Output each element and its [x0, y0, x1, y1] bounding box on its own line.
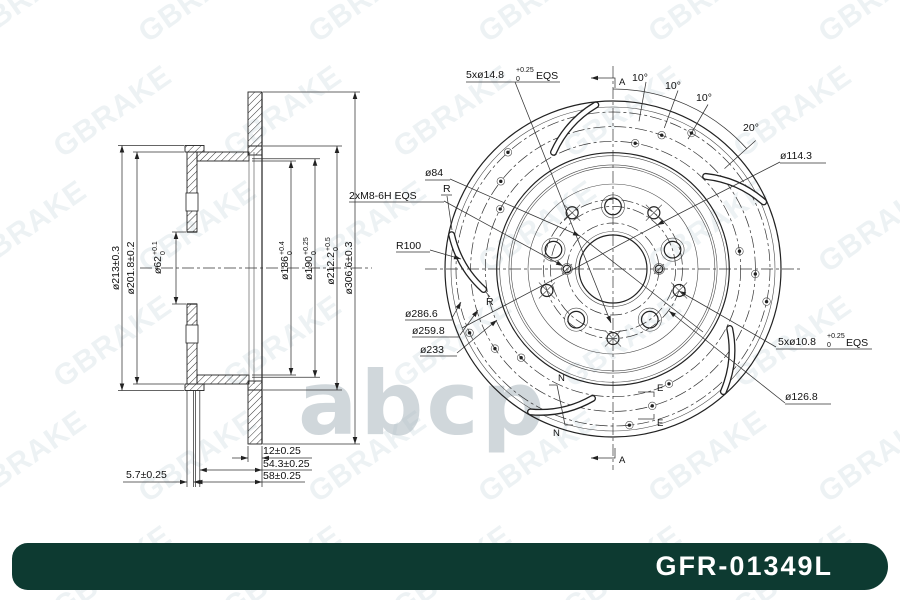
label-slot-circle-3: ø233 — [420, 344, 444, 356]
label-pcd: ø114.3 — [780, 150, 812, 162]
drill-dimple-center — [519, 356, 522, 359]
arrowhead — [556, 261, 564, 268]
part-number-banner: GFR-01349L — [12, 543, 888, 590]
svg-text:+0.5: +0.5 — [325, 237, 332, 251]
svg-text:+0.4: +0.4 — [279, 241, 286, 255]
drill-dimple-center — [651, 404, 654, 407]
arrowhead — [120, 384, 125, 391]
label-r-mark-top: R — [443, 183, 451, 195]
arrowhead — [313, 370, 318, 377]
label-slot-circle-1: ø286.6 — [405, 308, 438, 320]
svg-text:ø186: ø186 — [279, 256, 291, 280]
label-section-a-bottom: A — [619, 455, 626, 466]
part-number: GFR-01349L — [655, 551, 833, 582]
arrowhead — [335, 383, 340, 390]
label-holes-inner-sub: 0 — [827, 342, 831, 349]
arrowhead — [289, 368, 294, 375]
label-bolt-inner-circle: ø126.8 — [785, 391, 818, 403]
dim-label-212: ø212.2 +0.5 0 — [325, 237, 340, 285]
dim-label-186: ø186 +0.4 0 — [279, 241, 294, 280]
arrowhead — [180, 480, 187, 485]
leader-holes-inner — [679, 291, 776, 347]
label-thread: 2xM8-6H EQS — [349, 190, 417, 202]
leader-pcd — [462, 162, 780, 328]
leader-slot-radius — [430, 196, 490, 297]
dim-label-201: ø201.8±0.2 — [125, 241, 137, 294]
arrowhead — [606, 316, 613, 324]
brake-disc-technical-drawing: ø213±0.3 ø201.8±0.2 ø62 +0.1 0 ø186 +0.4… — [0, 0, 900, 600]
drill-dimple-center — [468, 331, 471, 334]
svg-text:0: 0 — [160, 251, 167, 255]
label-slot-radius: R100 — [396, 240, 421, 252]
label-angle-4: 20° — [743, 122, 759, 134]
drill-dimple-center — [493, 347, 496, 350]
arrowhead — [241, 456, 248, 461]
dim-label-58: 58±0.25 — [263, 470, 301, 482]
label-holes-outer-suffix: EQS — [536, 70, 558, 82]
leader-holes-outer — [515, 82, 611, 323]
stud-hole-cutout — [186, 325, 198, 343]
arrowhead — [255, 468, 262, 473]
arrowhead — [194, 480, 201, 485]
label-section-e-bottom: E — [657, 418, 663, 429]
drill-dimple-center — [690, 131, 693, 134]
extension-lines — [118, 92, 360, 487]
arrowhead — [591, 456, 598, 461]
svg-text:0: 0 — [287, 251, 294, 255]
arrowhead — [135, 152, 140, 159]
label-slot-circle-2: ø259.8 — [412, 325, 445, 337]
svg-text:ø190: ø190 — [303, 256, 315, 280]
svg-text:ø306.6±0.3: ø306.6±0.3 — [343, 241, 355, 294]
arrowhead — [289, 161, 294, 168]
drill-dimple-center — [667, 382, 670, 385]
arrowhead — [174, 232, 179, 239]
label-angle-1: 10° — [632, 72, 648, 84]
label-holes-outer: 5xø14.8 — [466, 69, 504, 81]
dim-label-62: ø62 +0.1 0 — [152, 241, 167, 274]
drill-dimple-center — [754, 272, 757, 275]
dim-label-57: 5.7±0.25 — [126, 469, 167, 481]
leader-slot-circles — [452, 302, 497, 353]
arrowhead — [353, 437, 358, 444]
svg-text:ø212.2: ø212.2 — [325, 252, 337, 285]
drill-dimple-center — [628, 423, 631, 426]
drill-dimple-center — [660, 133, 663, 136]
drill-dimple-center — [765, 300, 768, 303]
label-holes-inner: 5xø10.8 — [778, 336, 816, 348]
drill-dimple-center — [499, 207, 502, 210]
arrowhead — [353, 92, 358, 99]
drill-dimple-center — [506, 151, 509, 154]
label-holes-inner-sup: +0.25 — [827, 333, 845, 340]
label-section-n-top: N — [558, 373, 565, 384]
arrowhead — [591, 76, 598, 81]
section-view: ø213±0.3 ø201.8±0.2 ø62 +0.1 0 ø186 +0.4… — [110, 92, 372, 487]
drill-dimple-center — [738, 250, 741, 253]
dim-label-213: ø213±0.3 — [110, 246, 122, 290]
svg-text:0: 0 — [333, 247, 340, 251]
label-section-a-top: A — [619, 77, 626, 88]
label-holes-outer-sup: +0.25 — [516, 67, 534, 74]
arrowhead — [335, 146, 340, 153]
arrowhead — [456, 301, 463, 309]
drill-dimple-center — [633, 142, 636, 145]
dimension-lines — [122, 92, 355, 482]
label-hub-circle: ø84 — [425, 167, 443, 179]
label-angle-2: 10° — [665, 80, 681, 92]
arrowhead — [255, 480, 262, 485]
dim-label-190: ø190 +0.25 0 — [303, 237, 318, 280]
drill-dimple-center — [499, 180, 502, 183]
drawing-page: GBRAKEGBRAKEGBRAKEGBRAKEGBRAKEGBRAKEGBRA… — [0, 0, 900, 600]
label-section-n-bottom: N — [553, 428, 560, 439]
svg-text:0: 0 — [311, 251, 318, 255]
svg-text:+0.1: +0.1 — [152, 241, 159, 255]
arrowhead — [200, 468, 207, 473]
label-r-mark-bottom: R — [486, 296, 494, 308]
dim-label-306: ø306.6±0.3 — [343, 241, 355, 294]
svg-text:ø201.8±0.2: ø201.8±0.2 — [125, 241, 137, 294]
arrowhead — [174, 297, 179, 304]
arrowhead — [313, 159, 318, 166]
label-holes-inner-suffix: EQS — [846, 337, 868, 349]
arrowhead — [120, 146, 125, 153]
label-holes-outer-sub: 0 — [516, 76, 520, 83]
arrowhead — [135, 377, 140, 384]
stud-hole-cutout — [186, 193, 198, 211]
svg-text:+0.25: +0.25 — [303, 237, 310, 255]
svg-text:ø62: ø62 — [152, 256, 164, 274]
svg-text:ø213±0.3: ø213±0.3 — [110, 246, 122, 290]
dimension-arrowheads — [120, 76, 687, 485]
dim-label-12: 12±0.25 — [263, 445, 301, 457]
label-angle-3: 10° — [696, 92, 712, 104]
label-section-e-top: E — [657, 383, 663, 394]
dim-label-543: 54.3±0.25 — [263, 458, 310, 470]
